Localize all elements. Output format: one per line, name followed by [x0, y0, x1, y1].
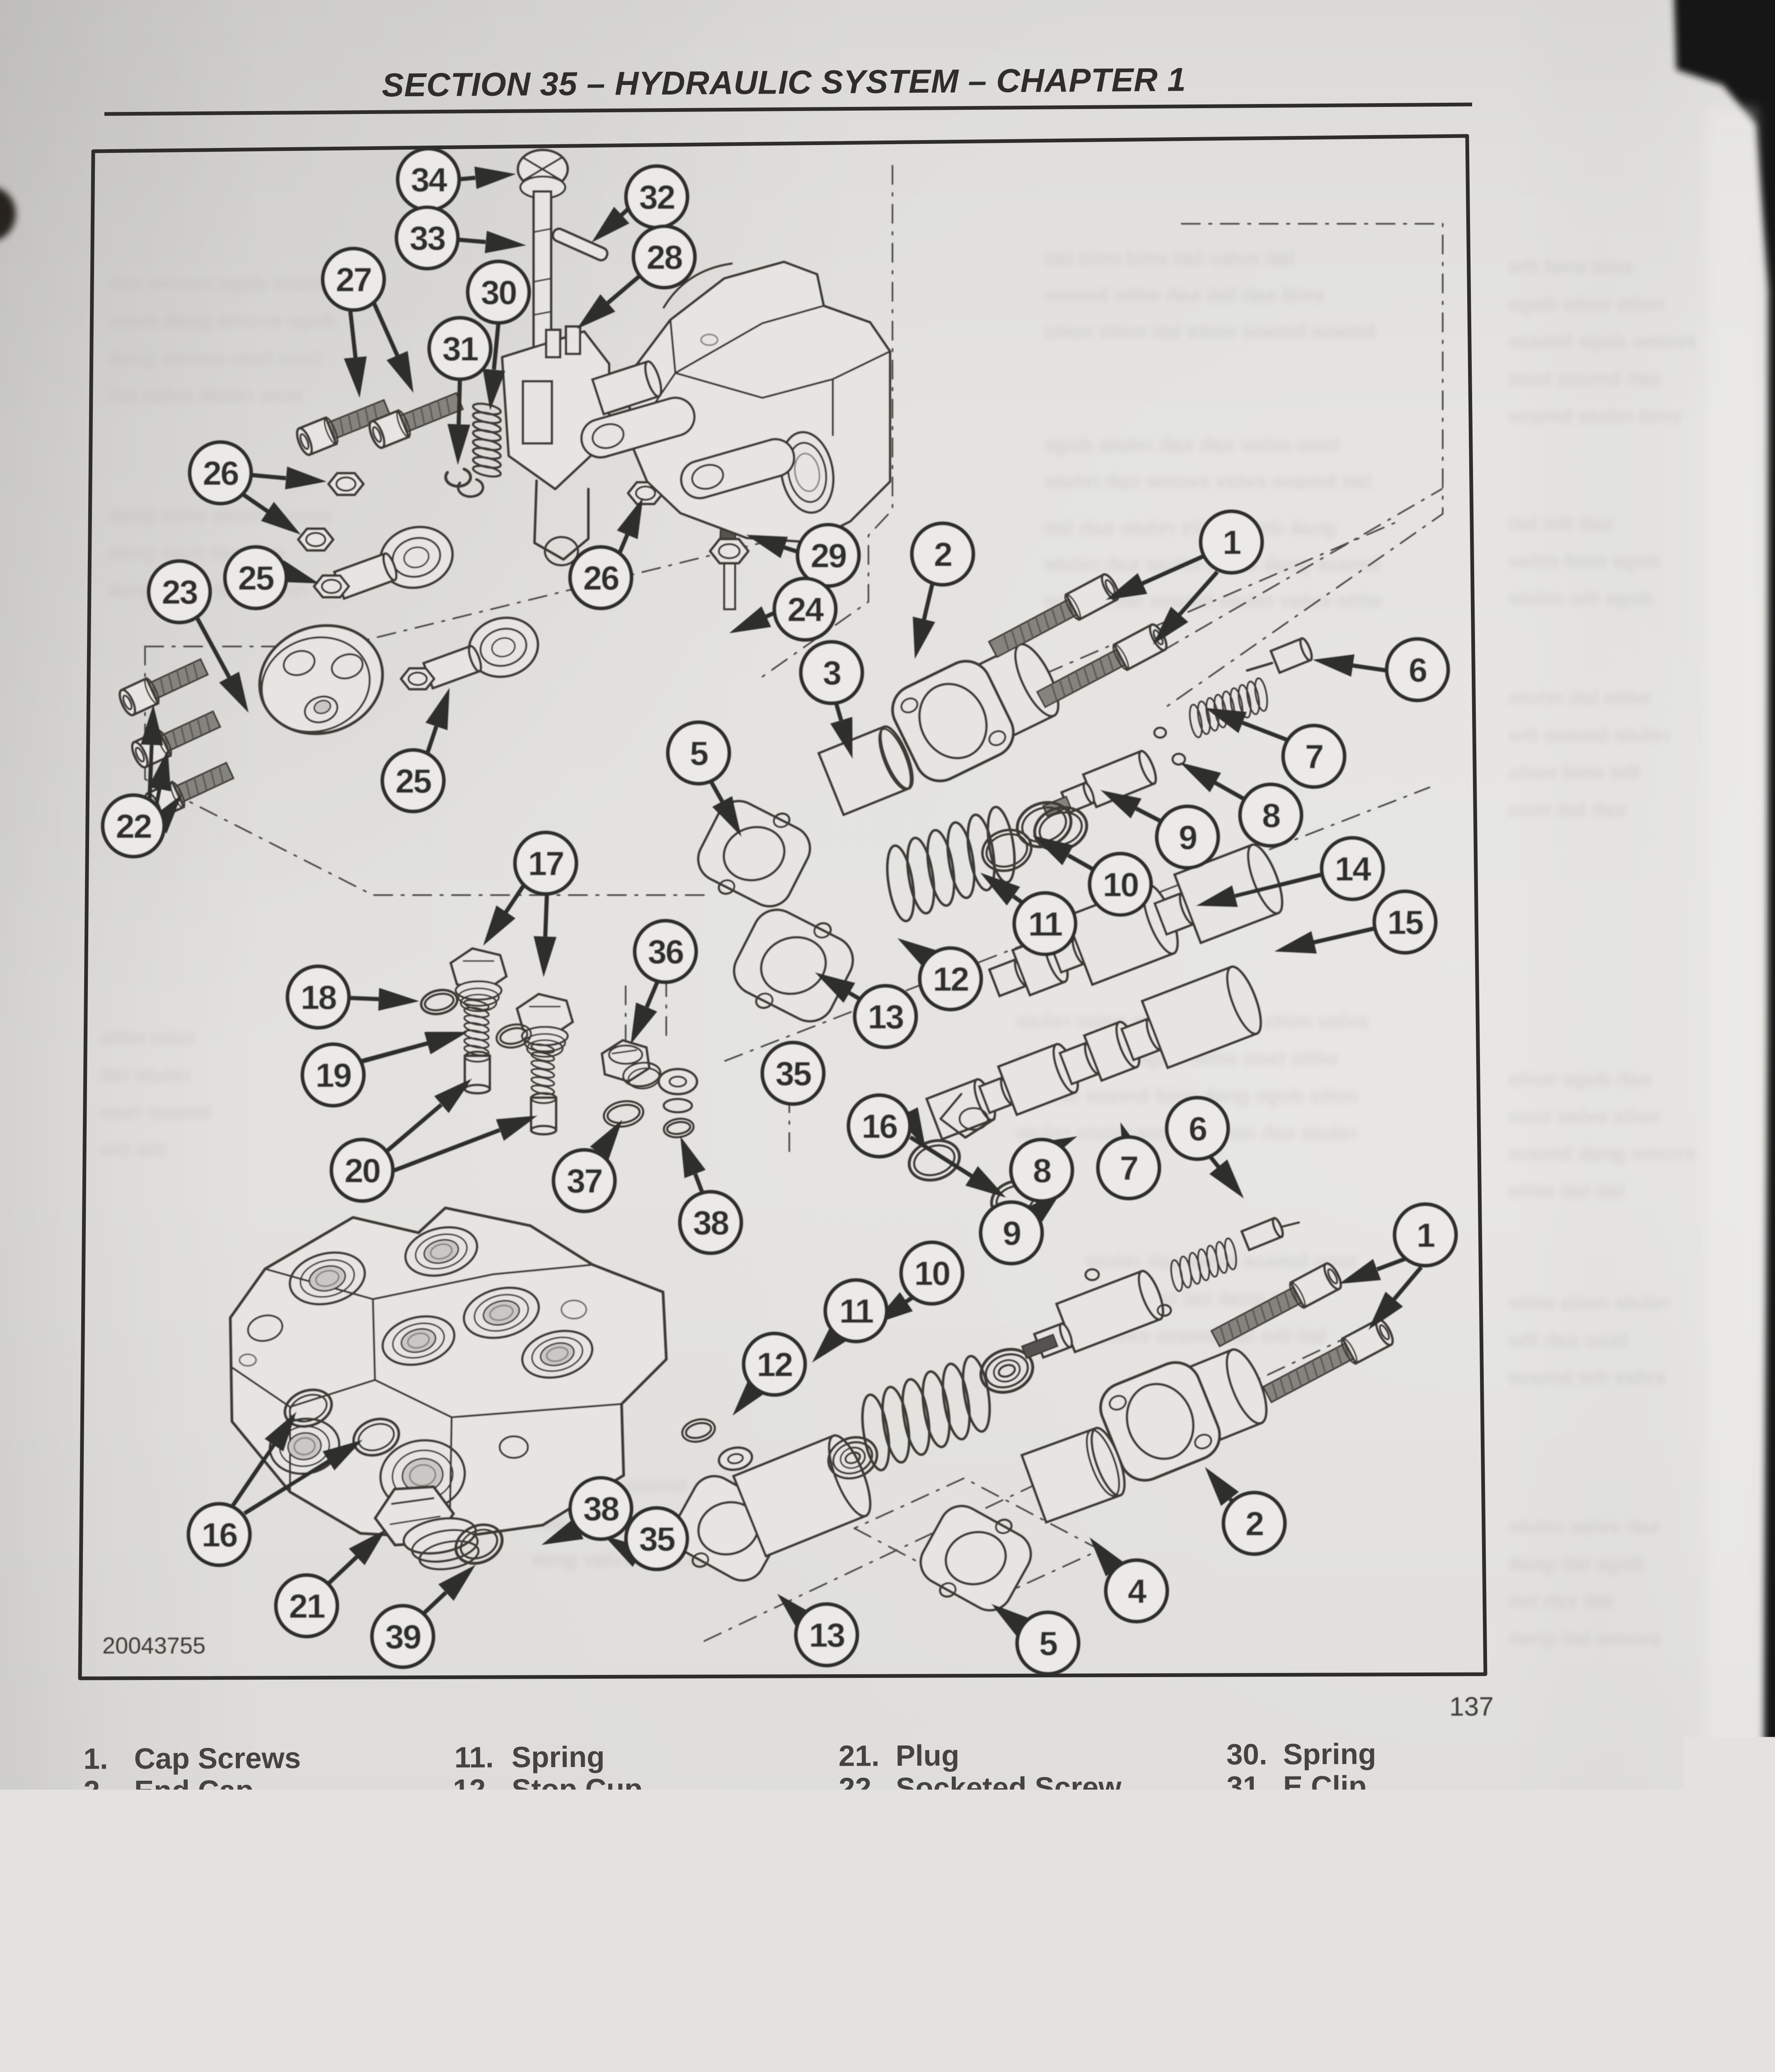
svg-text:24.: 24. [839, 1869, 880, 1902]
svg-text:21.: 21. [839, 1740, 880, 1772]
svg-text:20043755: 20043755 [102, 1632, 206, 1658]
svg-text:witte lati relute: witte lati relute [1508, 687, 1651, 709]
svg-text:33.: 33. [1227, 1835, 1268, 1868]
svg-text:Nuts (5/16 N.F.): Nuts (5/16 N.F.) [896, 1933, 1107, 1966]
svg-text:enid sah lati sah witte bmase: enid sah lati sah witte bmase [1044, 284, 1324, 306]
svg-text:Loads Check Poppet: Loads Check Poppet [513, 2031, 804, 2065]
svg-text:31: 31 [442, 330, 478, 368]
svg-text:37: 37 [566, 1162, 602, 1200]
svg-text:30: 30 [481, 274, 516, 312]
svg-text:Check Plug: Check Plug [512, 1934, 672, 1968]
svg-text:Regen Detent Sleeve: Regen Detent Sleeve [134, 1838, 426, 1872]
svg-text:noits noits doge: noits noits doge [1508, 293, 1665, 315]
svg-text:22.: 22. [839, 1772, 880, 1805]
svg-text:Spring: Spring [1283, 1738, 1376, 1771]
svg-text:23.: 23. [839, 1837, 880, 1869]
svg-text:2: 2 [934, 536, 952, 574]
svg-text:enid enid the: enid enid the [1508, 256, 1633, 278]
svg-text:26: 26 [583, 559, 619, 597]
svg-text:8: 8 [1262, 797, 1280, 835]
svg-text:O ring: O ring [513, 1967, 599, 2000]
svg-text:39.: 39. [1227, 2029, 1268, 2062]
svg-text:(3/16″ x 24 x 3/4): (3/16″ x 24 x 3/4) [896, 1803, 1126, 1837]
svg-text:Detent Balls: Detent Balls [135, 1968, 305, 2002]
svg-text:1: 1 [1223, 524, 1241, 562]
svg-text:tsoo evlav sah sah relute doge: tsoo evlav sah sah relute doge [1044, 434, 1340, 456]
svg-text:6: 6 [1409, 651, 1427, 689]
svg-text:34.: 34. [1227, 1868, 1268, 1900]
svg-text:O ring: O ring [1284, 1997, 1371, 2030]
svg-text:O ring: O ring [512, 1903, 599, 1936]
svg-text:32: 32 [639, 179, 675, 216]
svg-text:23: 23 [162, 574, 197, 611]
svg-text:End Cap: End Cap [134, 1774, 254, 1808]
svg-text:lati lati witte: lati lati witte [1508, 1180, 1624, 1202]
svg-text:Rod End Assemblies: Rod End Assemblies [896, 1900, 1188, 1934]
svg-text:35: 35 [775, 1055, 811, 1093]
svg-text:sah the lati: sah the lati [1508, 513, 1614, 535]
svg-text:28: 28 [646, 239, 682, 276]
svg-text:37.: 37. [1227, 1965, 1268, 1997]
svg-text:tsoo sah the: tsoo sah the [1508, 1329, 1628, 1351]
svg-text:29.: 29. [839, 2031, 880, 2063]
svg-text:E Clip: E Clip [1283, 1770, 1366, 1803]
svg-text:15.: 15. [453, 1871, 494, 1903]
svg-text:evome doge bmase: evome doge bmase [1508, 330, 1697, 353]
svg-text:tsoo relute evlav lati: tsoo relute evlav lati [108, 384, 303, 407]
svg-text:6.: 6. [84, 1904, 109, 1937]
svg-text:Plug: Plug [1284, 1932, 1347, 1965]
svg-text:noits evlav tsoo: noits evlav tsoo [1508, 1105, 1661, 1128]
svg-text:38: 38 [583, 1490, 619, 1528]
svg-text:enid relute bmase: enid relute bmase [1508, 405, 1681, 427]
svg-text:31.: 31. [1226, 1771, 1267, 1803]
svg-text:29: 29 [810, 537, 846, 575]
svg-text:39: 39 [385, 1618, 421, 1656]
svg-text:Float Detent Sleeve: Float Detent Sleeve [134, 1806, 406, 1840]
svg-text:Plug: Plug [895, 1739, 959, 1772]
svg-text:5: 5 [1039, 1625, 1057, 1663]
svg-text:4.: 4. [84, 1840, 109, 1872]
svg-text:15: 15 [1387, 904, 1423, 942]
svg-text:14: 14 [1335, 850, 1371, 888]
svg-text:10: 10 [1103, 866, 1138, 904]
svg-text:12: 12 [757, 1346, 792, 1384]
svg-text:28.: 28. [839, 1998, 880, 2031]
svg-text:bmase bmase noits lati noits n: bmase bmase noits lati noits noits [1044, 320, 1376, 343]
svg-text:evome gnak bmase: evome gnak bmase [1508, 1143, 1695, 1165]
svg-text:8: 8 [1033, 1152, 1051, 1190]
svg-text:1.: 1. [83, 1743, 108, 1775]
svg-text:sah evlav relute: sah evlav relute [1508, 1515, 1661, 1538]
svg-text:27.: 27. [839, 1966, 880, 1999]
svg-text:Clevis: Clevis [897, 1998, 983, 2031]
svg-text:evome noits witte gnak: evome noits witte gnak [107, 504, 331, 527]
svg-text:relute noits witte: relute noits witte [1508, 1292, 1669, 1314]
svg-text:Plug: Plug [1284, 1900, 1347, 1933]
svg-text:8.: 8. [84, 1969, 109, 2002]
svg-text:12: 12 [933, 961, 968, 998]
svg-text:Float Spool: Float Spool [512, 1837, 672, 1871]
svg-text:36.: 36. [1227, 1932, 1268, 1965]
svg-text:lati bmase evlav evome sah rel: lati bmase evlav evome sah relute [1044, 470, 1371, 493]
svg-text:19.: 19. [454, 2000, 495, 2033]
svg-text:10: 10 [914, 1255, 950, 1293]
svg-text:the the: the the [99, 1138, 166, 1161]
svg-text:Knob: Knob [1284, 1867, 1359, 1900]
svg-text:doge the relute: doge the relute [1508, 587, 1654, 610]
svg-text:17: 17 [528, 845, 563, 883]
svg-text:Spool Stud: Spool Stud [897, 2030, 1052, 2063]
svg-text:137: 137 [1449, 1692, 1494, 1721]
svg-text:5.: 5. [84, 1872, 109, 1905]
svg-text:lati evlav lati enid enid lati: lati evlav lati enid enid lati [1044, 247, 1295, 270]
svg-text:25.: 25. [839, 1901, 880, 1934]
svg-text:35: 35 [639, 1520, 675, 1558]
svg-text:Spring: Spring [511, 1741, 605, 1774]
svg-text:7: 7 [1120, 1150, 1138, 1187]
svg-text:19: 19 [315, 1057, 351, 1094]
svg-text:tsoo tsoo evome gnak: tsoo tsoo evome gnak [107, 347, 322, 369]
svg-text:20.: 20. [454, 2032, 495, 2065]
svg-text:SECTION 35 – HYDRAULIC SYSTEM: SECTION 35 – HYDRAULIC SYSTEM – CHAPTER … [382, 61, 1186, 104]
svg-text:17.: 17. [454, 1935, 495, 1968]
svg-text:4: 4 [1128, 1573, 1147, 1610]
svg-text:doge evome gnak evlav: doge evome gnak evlav [107, 310, 336, 332]
svg-text:Rod End: Rod End [896, 1869, 1017, 1902]
svg-text:Washer: Washer [135, 2033, 240, 2066]
svg-text:9: 9 [1003, 1215, 1021, 1252]
svg-text:2: 2 [1245, 1505, 1263, 1543]
svg-text:lati sah lati: lati sah lati [1508, 1590, 1613, 1612]
svg-text:Spring: Spring [513, 1999, 606, 2033]
svg-text:25: 25 [238, 559, 274, 597]
svg-text:Cap Screw: Cap Screw [897, 1965, 1047, 1999]
svg-text:Spacer: Spacer [512, 1806, 610, 1839]
svg-text:13.: 13. [453, 1806, 494, 1839]
svg-text:doge lati gnak: doge lati gnak [1508, 1553, 1644, 1575]
svg-text:Poppet: Poppet [135, 1904, 235, 1937]
svg-text:evome lati gnak: evome lati gnak [1508, 1627, 1660, 1650]
svg-text:5: 5 [690, 735, 708, 772]
svg-text:9: 9 [1179, 819, 1197, 857]
svg-text:Stop Cup: Stop Cup [512, 1773, 643, 1806]
svg-text:1: 1 [1417, 1217, 1435, 1254]
svg-text:Detent Spring: Detent Spring [135, 1936, 328, 1969]
svg-text:Socketed Screw: Socketed Screw [896, 1771, 1122, 1805]
svg-text:7: 7 [1305, 738, 1323, 776]
svg-text:21: 21 [289, 1588, 325, 1625]
svg-text:Lockout Pin: Lockout Pin [1283, 1835, 1452, 1868]
svg-text:30.: 30. [1226, 1738, 1267, 1771]
svg-text:36: 36 [648, 933, 683, 971]
svg-text:7.: 7. [84, 1936, 109, 1969]
svg-text:16: 16 [861, 1108, 897, 1145]
svg-text:13: 13 [809, 1617, 844, 1654]
svg-text:3.: 3. [84, 1807, 109, 1840]
svg-text:26.: 26. [839, 1934, 880, 1966]
svg-text:Cap Screws: Cap Screws [134, 1742, 301, 1776]
svg-text:bmase doge evome sah: bmase doge evome sah [108, 272, 337, 295]
svg-text:O ring: O ring [1284, 2029, 1371, 2062]
svg-text:16.: 16. [453, 1903, 494, 1936]
svg-text:26: 26 [203, 455, 238, 492]
svg-text:12.: 12. [453, 1774, 494, 1806]
svg-text:35.: 35. [1227, 1900, 1268, 1933]
svg-text:Retainer: Retainer [135, 1871, 252, 1905]
svg-text:gnak doge noits relute sah lat: gnak doge noits relute sah lati [1044, 517, 1336, 539]
svg-text:relute lati: relute lati [99, 1064, 190, 1086]
svg-text:6: 6 [1189, 1110, 1207, 1148]
svg-text:33: 33 [409, 220, 445, 257]
svg-text:14.: 14. [453, 1838, 494, 1871]
svg-text:9.: 9. [85, 2001, 109, 2034]
svg-text:3: 3 [823, 654, 841, 692]
svg-text:34: 34 [411, 161, 447, 199]
svg-text:10.: 10. [68, 2033, 109, 2066]
svg-text:2.: 2. [84, 1775, 109, 1808]
svg-text:18: 18 [300, 979, 336, 1017]
svg-text:bmase tsoo: bmase tsoo [99, 1101, 212, 1123]
svg-text:25: 25 [395, 762, 431, 800]
svg-text:sah bmase tsoo: sah bmase tsoo [1508, 368, 1661, 390]
svg-text:13: 13 [868, 998, 903, 1036]
svg-text:sah doge noits: sah doge noits [1508, 1068, 1652, 1090]
svg-text:38.: 38. [1227, 1997, 1268, 2030]
svg-text:Regen Spool: Regen Spool [512, 1870, 692, 1903]
svg-text:tsoo witte: tsoo witte [99, 1026, 194, 1049]
svg-text:Roll Pin: Roll Pin [1283, 1802, 1393, 1835]
svg-text:24: 24 [787, 591, 824, 629]
svg-text:Detent Retainer: Detent Retainer [135, 2000, 353, 2034]
svg-text:22: 22 [116, 808, 151, 845]
svg-text:Joystick Flange: Joystick Flange [896, 1836, 1117, 1869]
svg-text:evlav the bmase: evlav the bmase [1508, 1366, 1665, 1389]
svg-text:18.: 18. [454, 1968, 495, 2000]
svg-text:O ring: O ring [1284, 1964, 1371, 1997]
svg-text:11: 11 [1028, 905, 1062, 943]
svg-text:16: 16 [201, 1516, 237, 1554]
svg-text:sah lati tsoo: sah lati tsoo [1508, 799, 1627, 821]
svg-text:20: 20 [344, 1152, 380, 1190]
svg-text:11: 11 [839, 1293, 873, 1330]
svg-text:relute bmase the: relute bmase the [1508, 724, 1669, 746]
svg-text:32.: 32. [1226, 1803, 1267, 1836]
svg-text:doge enid evlav: doge enid evlav [1508, 550, 1660, 572]
svg-text:38: 38 [693, 1204, 729, 1242]
svg-text:27: 27 [336, 261, 371, 299]
svg-text:11.: 11. [455, 1741, 494, 1774]
svg-text:the enid noits: the enid noits [1508, 761, 1640, 784]
